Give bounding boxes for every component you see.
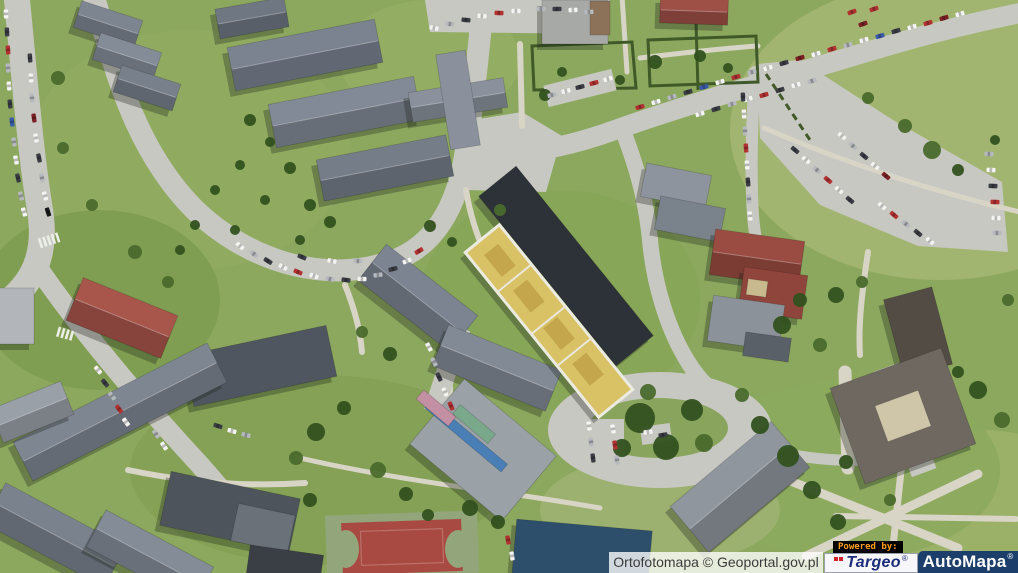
- automapa-registered-mark: ®: [1007, 552, 1013, 561]
- targeo-logo[interactable]: Targeo ®: [824, 553, 918, 573]
- attribution-source-text: Ortofotomapa © Geoportal.gov.pl: [613, 554, 818, 570]
- automapa-logo-text: AutoMapa: [923, 552, 1007, 572]
- aerial-imagery: [0, 0, 1018, 573]
- automapa-logo[interactable]: AutoMapa ®: [918, 551, 1018, 573]
- targeo-registered-mark: ®: [902, 554, 908, 563]
- powered-by-label: Powered by:: [833, 541, 903, 553]
- map-viewport[interactable]: Ortofotomapa © Geoportal.gov.pl Powered …: [0, 0, 1018, 573]
- targeo-logo-text: Targeo: [846, 554, 901, 572]
- map-attribution: Ortofotomapa © Geoportal.gov.pl: [609, 552, 823, 573]
- targeo-brand-mark-icon: [834, 557, 838, 561]
